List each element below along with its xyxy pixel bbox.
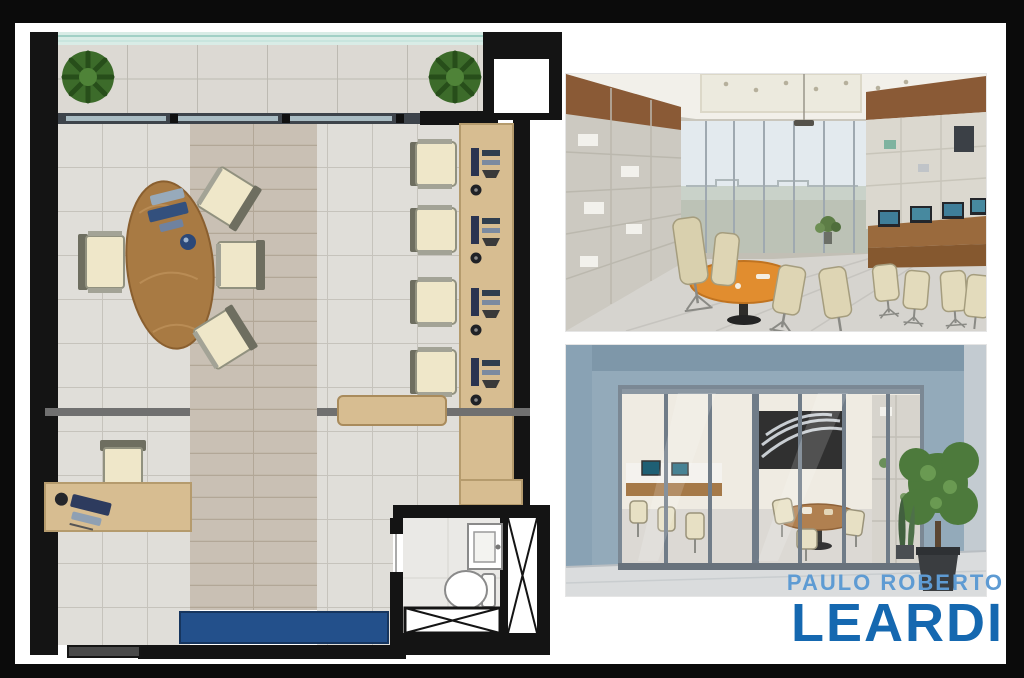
office-interior-render xyxy=(566,74,986,331)
interior-render-art xyxy=(566,74,986,331)
service-shaft xyxy=(508,518,537,633)
office-entrance-render xyxy=(566,345,986,596)
wall-left xyxy=(30,32,58,655)
terrace xyxy=(58,32,488,113)
entry-door xyxy=(68,646,140,657)
bathroom xyxy=(390,480,550,655)
manager-desk xyxy=(45,483,191,531)
entrance-render-art xyxy=(566,345,986,596)
blue-bench xyxy=(180,612,388,643)
bath-cabinet xyxy=(460,480,522,505)
table-item-glint xyxy=(184,238,189,243)
brand-logo: PAULO ROBERTO LEARDI xyxy=(752,572,1004,650)
floor-box-shaft xyxy=(405,608,500,633)
table-item-round xyxy=(180,234,196,250)
plant-icon xyxy=(62,51,114,103)
floor-plan xyxy=(30,30,562,662)
brand-top-line: PAULO ROBERTO xyxy=(752,572,1004,594)
meeting-chair-middle xyxy=(216,240,265,290)
wall-bottom xyxy=(138,645,406,659)
listing-image: { "brand": { "top_line": "PAULO ROBERTO"… xyxy=(0,0,1024,678)
brand-bottom-line: LEARDI xyxy=(752,596,1004,650)
window-view xyxy=(681,114,876,259)
meeting-chair-left xyxy=(78,231,124,293)
monitor-icon xyxy=(642,461,660,475)
glass-door-unit xyxy=(618,385,924,570)
toilet xyxy=(445,571,495,609)
plant-icon xyxy=(429,51,481,103)
door-track xyxy=(618,563,924,570)
partition-left xyxy=(45,408,190,416)
sink xyxy=(468,524,502,569)
sideboard xyxy=(338,396,446,425)
manager-chair xyxy=(100,440,146,488)
elevator-shaft xyxy=(483,32,562,120)
glass-facade xyxy=(58,113,420,124)
wall-right xyxy=(513,120,530,508)
